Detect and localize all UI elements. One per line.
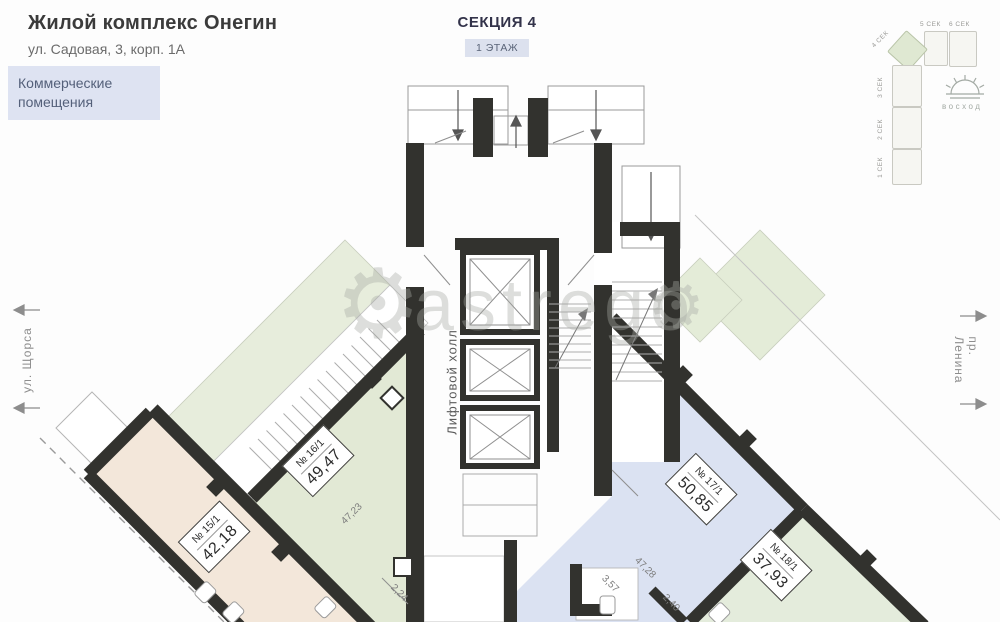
sunrise-logo-icon	[938, 70, 992, 102]
page-subtitle: ул. Садовая, 3, корп. 1А	[28, 41, 185, 57]
floor-badge: 1 ЭТАЖ	[465, 39, 529, 57]
minimap-label-6: 6 СЕК	[949, 21, 970, 28]
minimap-label-2: 2 СЕК	[877, 119, 884, 140]
building-minimap: 5 СЕК 6 СЕК 4 СЕК 3 СЕК 2 СЕК 1 СЕК восх…	[862, 4, 998, 186]
lift-hall-label: Лифтовой холл	[445, 329, 460, 435]
minimap-label-3: 3 СЕК	[877, 77, 884, 98]
elevator-shaft-2	[463, 342, 537, 398]
street-label-right: пр. Ленина	[952, 336, 980, 383]
section-title: СЕКЦИЯ 4	[457, 14, 536, 31]
developer-logo-label: восход	[942, 102, 982, 111]
minimap-section-1[interactable]	[892, 149, 922, 185]
street-label-left: ул. Щорса	[20, 327, 34, 393]
minimap-label-4: 4 СЕК	[871, 30, 891, 50]
minimap-section-6[interactable]	[949, 31, 977, 67]
floorplan-page: { "header": { "title": "Жилой комплекс О…	[0, 0, 1000, 622]
minimap-section-5[interactable]	[924, 31, 948, 66]
minimap-label-5: 5 СЕК	[920, 21, 941, 28]
elevator-shaft-1	[463, 252, 537, 332]
elevator-shafts	[463, 252, 537, 536]
minimap-section-2[interactable]	[892, 107, 922, 149]
commercial-premises-badge: Коммерческие помещения	[8, 66, 160, 120]
elevator-shaft-3	[463, 408, 537, 466]
core-bottom-room	[424, 556, 504, 622]
minimap-section-3[interactable]	[892, 65, 922, 107]
page-title: Жилой комплекс Онегин	[28, 12, 277, 35]
minimap-label-1: 1 СЕК	[877, 157, 884, 178]
